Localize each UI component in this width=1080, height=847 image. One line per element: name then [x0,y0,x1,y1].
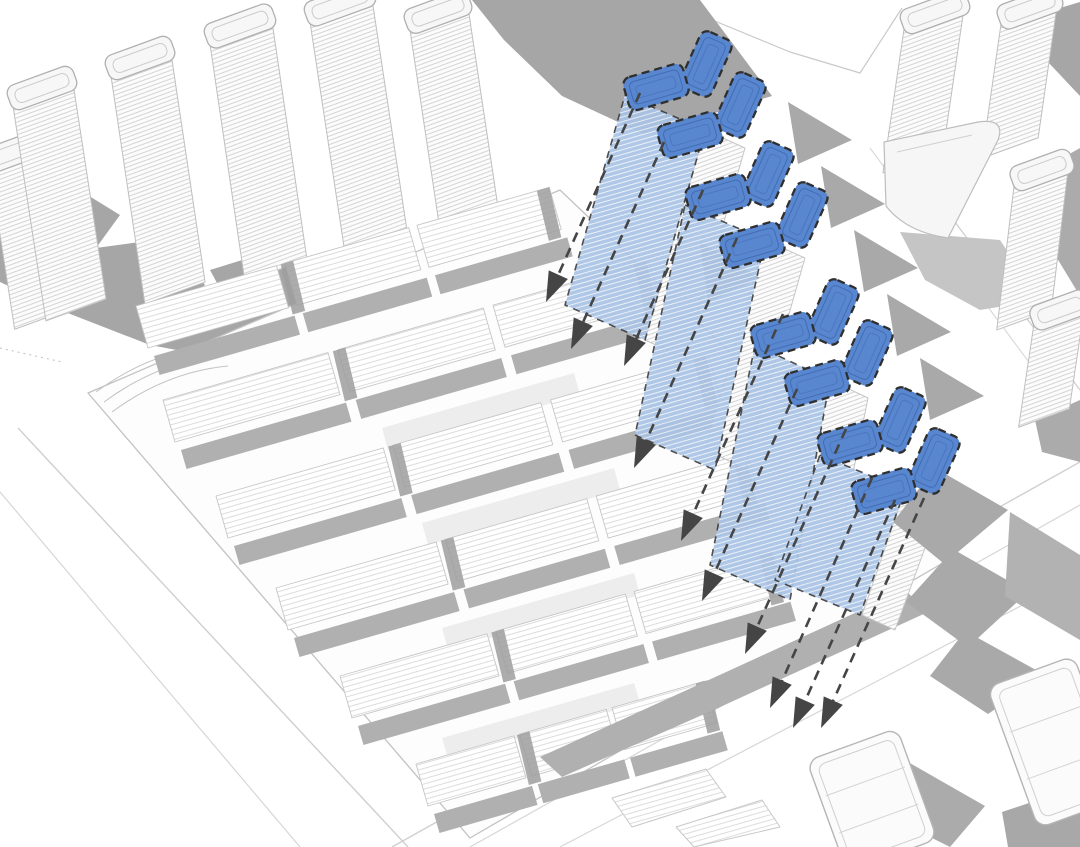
east-shadow-tooth-4 [887,294,951,356]
axonometric-site-diagram [0,0,1080,847]
diagram-svg [0,0,1080,847]
context-tower-nw-4-body [309,0,407,253]
context-tower-se-2-footprint [987,656,1080,828]
east-shadow-mass-ext [1005,512,1080,640]
east-shadow-tooth-1 [788,102,852,164]
context-tower-nw-4 [302,0,407,253]
context-podium-curved [884,121,1000,238]
context-tower-se-1 [807,728,938,847]
context-tower-nw-3-body [209,15,307,283]
east-shadow-tooth-5 [920,358,984,420]
context-tower-nw-3 [202,1,307,282]
survey-dotted-left [0,348,62,362]
context-tower-se-2 [987,656,1080,828]
east-shadow-tooth-2 [821,166,885,228]
view-arrow-9-head-icon [793,696,815,728]
view-arrow-8-head-icon [770,676,792,708]
